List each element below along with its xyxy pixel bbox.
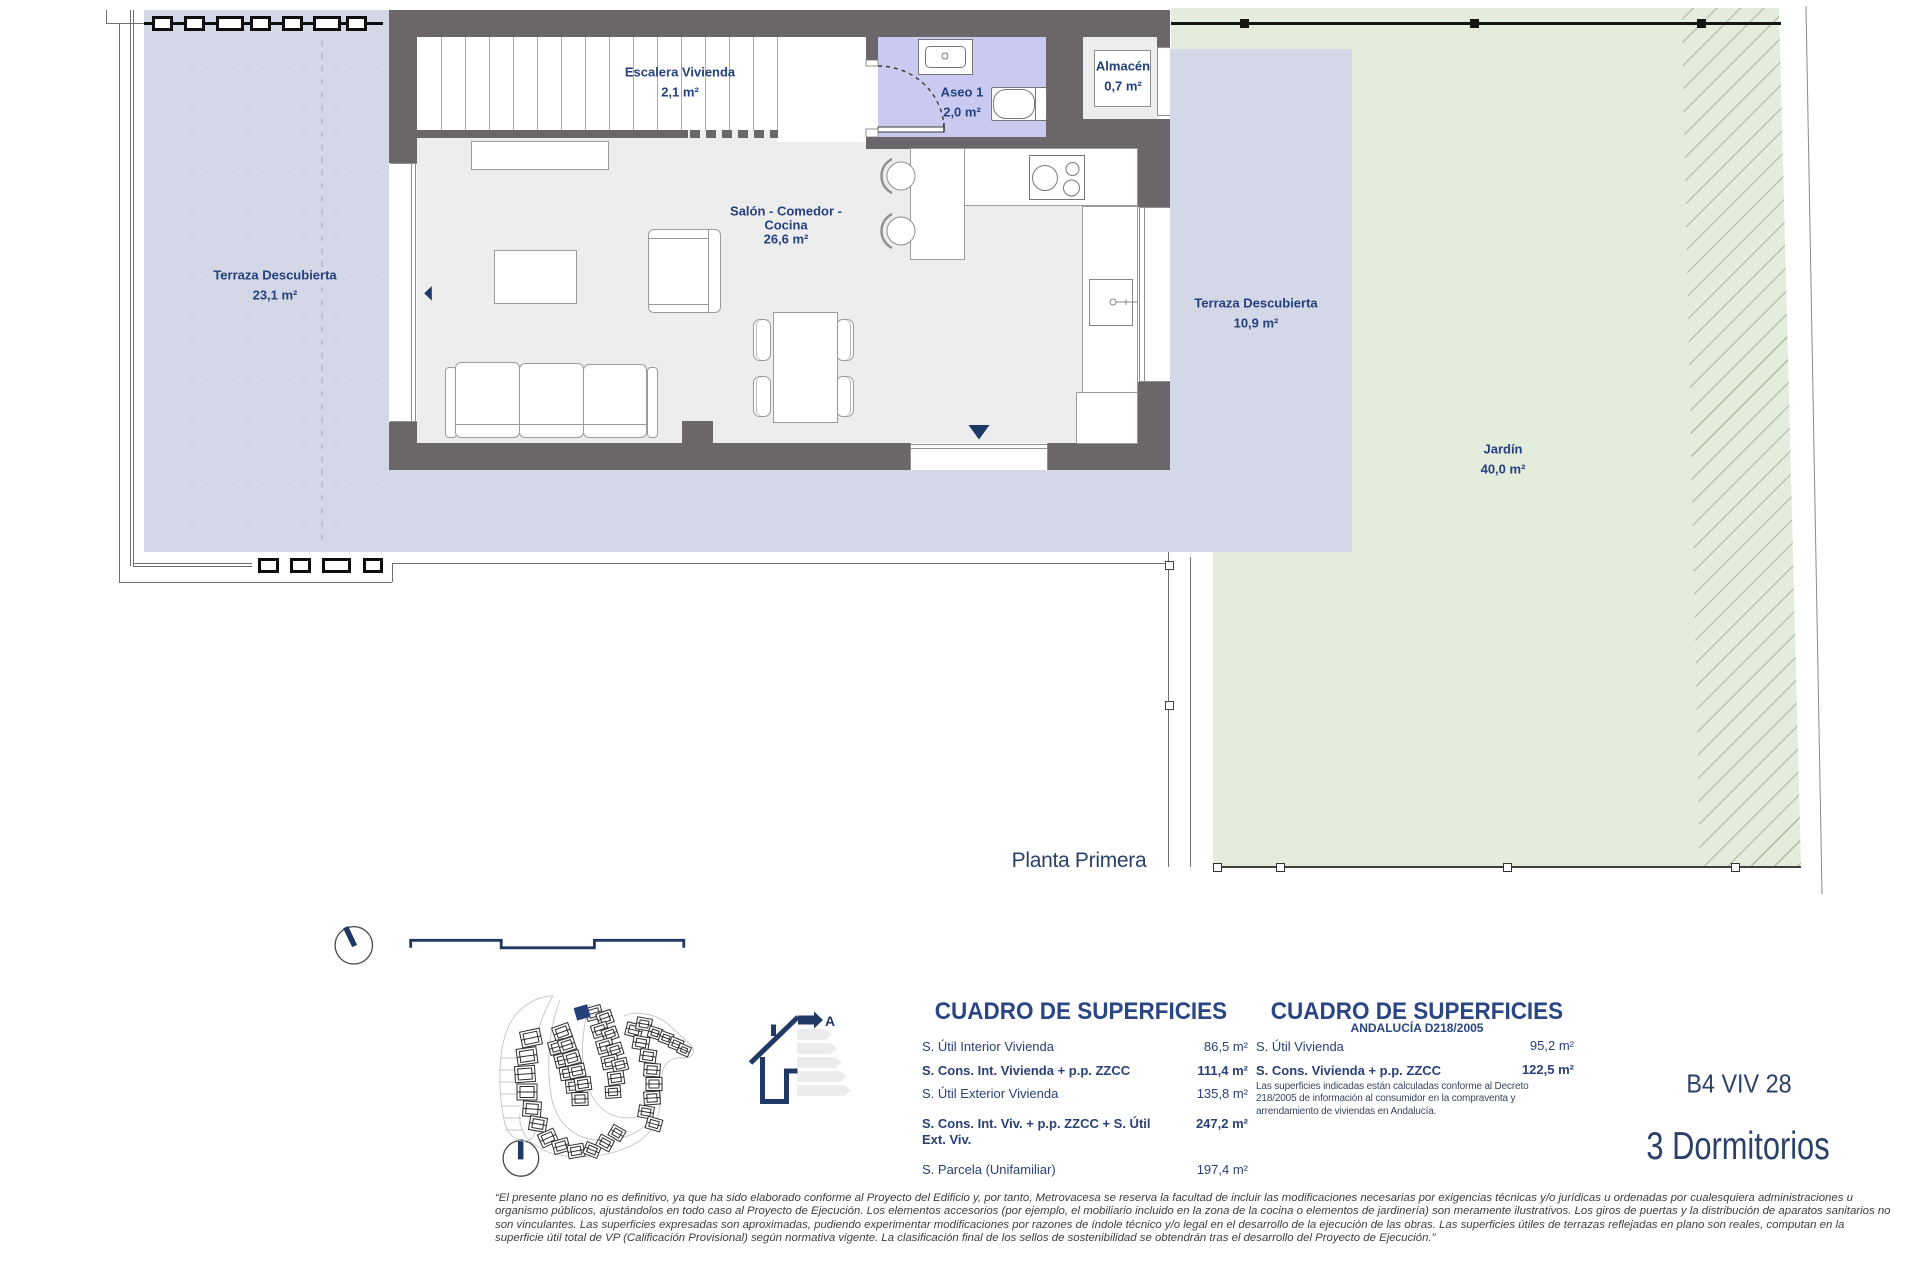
svg-text:A: A bbox=[825, 1013, 835, 1029]
